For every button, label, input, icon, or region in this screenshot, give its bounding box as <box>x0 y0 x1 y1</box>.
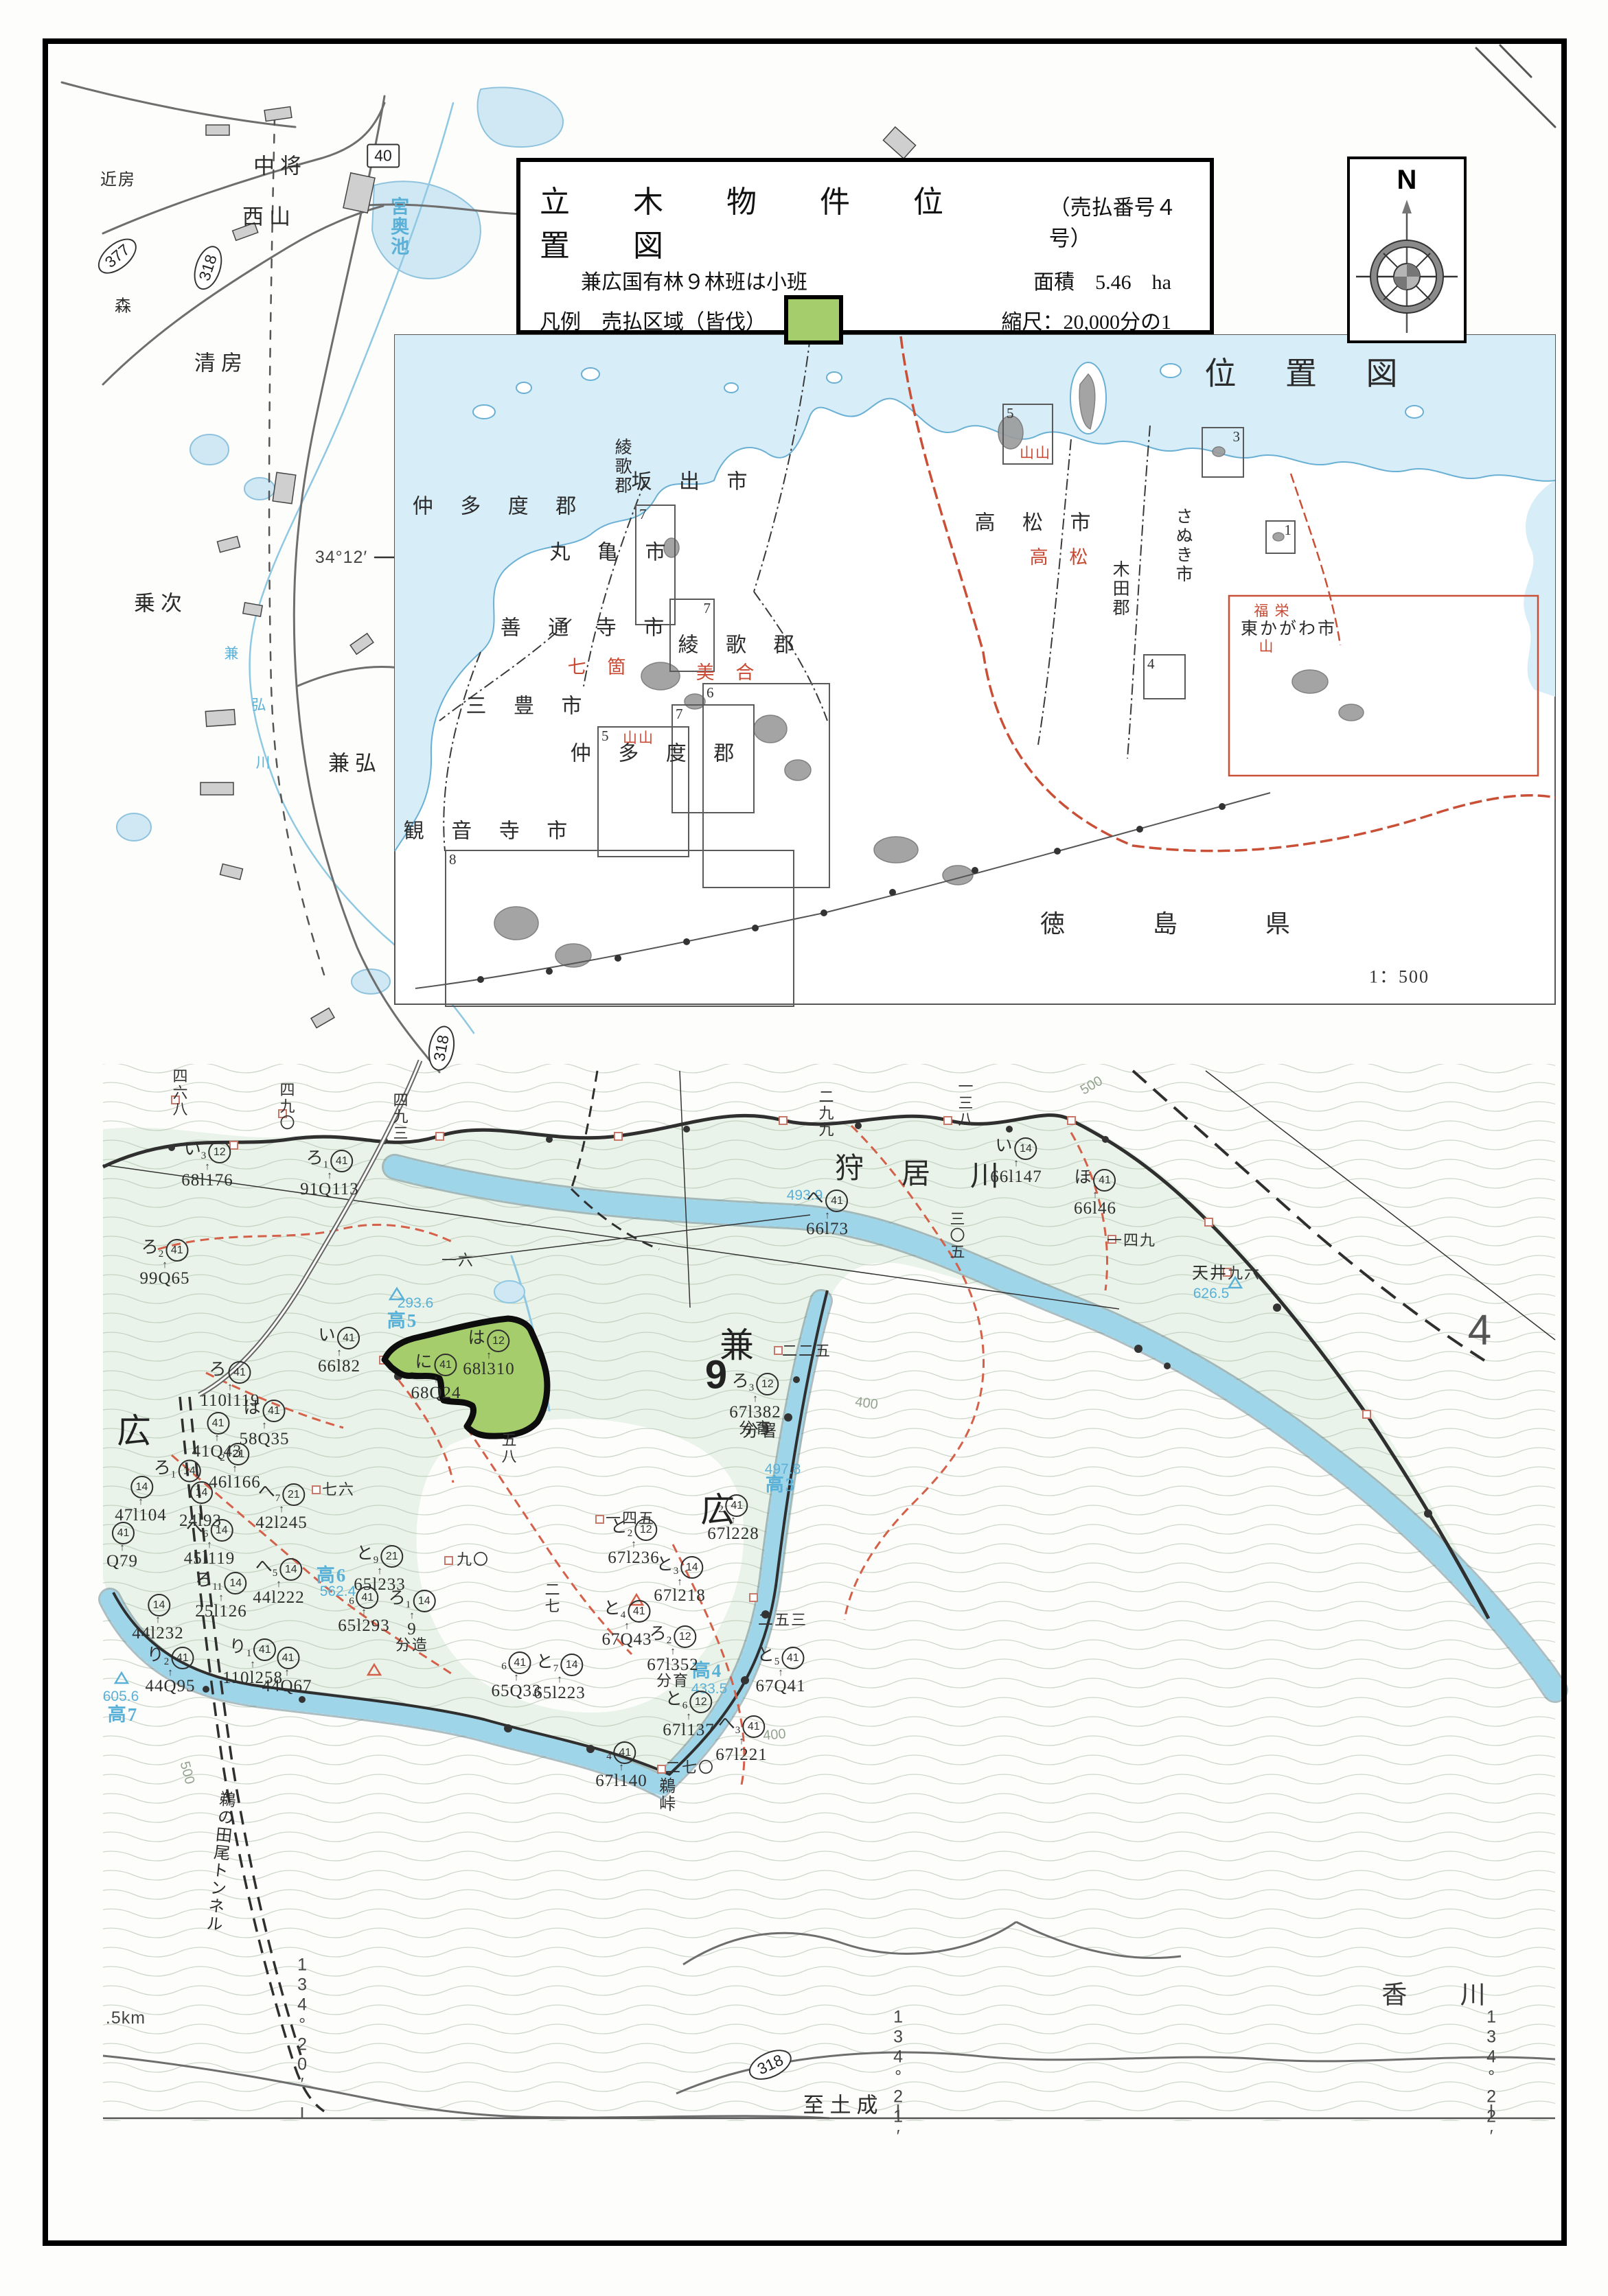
page: 7753146578 中将近房西山森清房乗次兼弘宮奥池兼弘川34°12′位 置 … <box>0 0 1608 2296</box>
main-topo <box>103 1060 1555 2121</box>
sale-number: （売払番号４号） <box>1049 190 1191 252</box>
forest-subject: 兼広国有林９林班は小班 <box>581 265 807 295</box>
north-label: N <box>1350 165 1464 196</box>
legend-color-swatch <box>784 295 843 345</box>
area-value: 面積 5.46 ha <box>1033 265 1191 295</box>
inset-map <box>395 335 1555 1004</box>
legend-label: 凡例 売払区域（皆伐） <box>540 305 766 335</box>
compass-rose-icon <box>1352 196 1462 340</box>
scale-label: 縮尺：20,000分の1 <box>1002 305 1191 335</box>
map-title: 立 木 物 件 位 置 図 <box>540 177 1045 265</box>
compass-box: N <box>1347 156 1467 343</box>
title-box: 立 木 物 件 位 置 図 （売払番号４号） 兼広国有林９林班は小班 面積 5.… <box>516 158 1214 334</box>
